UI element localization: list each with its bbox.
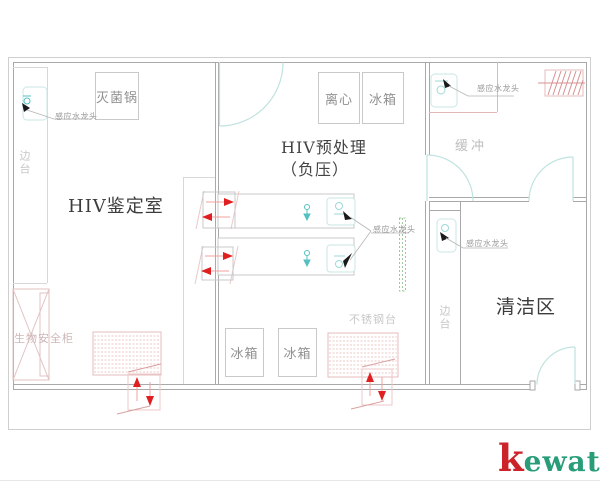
centrifuge-label: 离心: [325, 89, 353, 108]
airflow-arrow-icon: [146, 396, 154, 406]
door-buffer-left: [427, 155, 473, 201]
room-label-hiv-pretreatment-line1: HIV预处理: [281, 137, 367, 159]
door-top-pretreatment: [220, 62, 284, 126]
door-clean-bottom: [537, 347, 575, 385]
room-label-hiv-pretreatment-line2: （负压）: [281, 159, 367, 181]
airflow-arrow-icon: [133, 377, 141, 387]
sensor-faucet-label: 感应水龙头: [55, 111, 98, 122]
sensor-faucet-label: 感应水龙头: [373, 224, 416, 235]
stainless-steel-bench-label: 不锈钢台: [349, 311, 397, 327]
kewatt-logo: kewatt: [498, 436, 600, 480]
hatched-bench-left: [93, 332, 161, 375]
sensor-faucet-label: 感应水龙头: [466, 238, 509, 249]
fridge-label: 冰箱: [369, 89, 397, 108]
exhaust-grille-icon: [538, 70, 585, 96]
fridge-box-bottom-2: 冰箱: [278, 328, 317, 377]
side-bench-label-left: 边台: [16, 150, 32, 176]
floor-plan: HIV鉴定室 HIV预处理 （负压） 缓冲 清洁区 灭菌锅 离心 冰箱 冰箱 冰…: [0, 0, 600, 500]
door-buffer-right: [529, 157, 573, 201]
sensor-faucet-sink-icon: [327, 198, 355, 225]
fridge-box-top: 冰箱: [362, 72, 404, 124]
room-label-hiv-identification: HIV鉴定室: [68, 192, 164, 218]
hatched-bench-steel: [328, 333, 398, 377]
kewatt-logo-initial: k: [498, 436, 524, 480]
footer-divider: [0, 480, 600, 481]
side-bench-label-right: 边台: [436, 305, 452, 331]
sensor-faucet-sink-icon: [431, 74, 457, 107]
kewatt-logo-rest: ewatt: [524, 445, 600, 478]
airflow-arrow-icon: [378, 391, 386, 401]
floor-plan-linework: [0, 0, 600, 500]
room-label-clean-area: 清洁区: [496, 292, 556, 319]
room-label-hiv-pretreatment: HIV预处理 （负压）: [281, 137, 367, 181]
fridge-label: 冰箱: [230, 343, 258, 362]
sensor-faucet-label: 感应水龙头: [477, 83, 520, 94]
fridge-box-bottom-1: 冰箱: [225, 328, 264, 377]
biosafety-cabinet-label: 生物安全柜: [14, 330, 74, 346]
centrifuge-box: 离心: [318, 72, 360, 124]
fridge-label: 冰箱: [283, 343, 311, 362]
sterilizer-box: 灭菌锅: [95, 72, 139, 120]
sterilizer-label: 灭菌锅: [96, 87, 138, 106]
room-label-buffer: 缓冲: [455, 135, 487, 154]
sensor-faucet-sink-icon: [437, 219, 456, 252]
